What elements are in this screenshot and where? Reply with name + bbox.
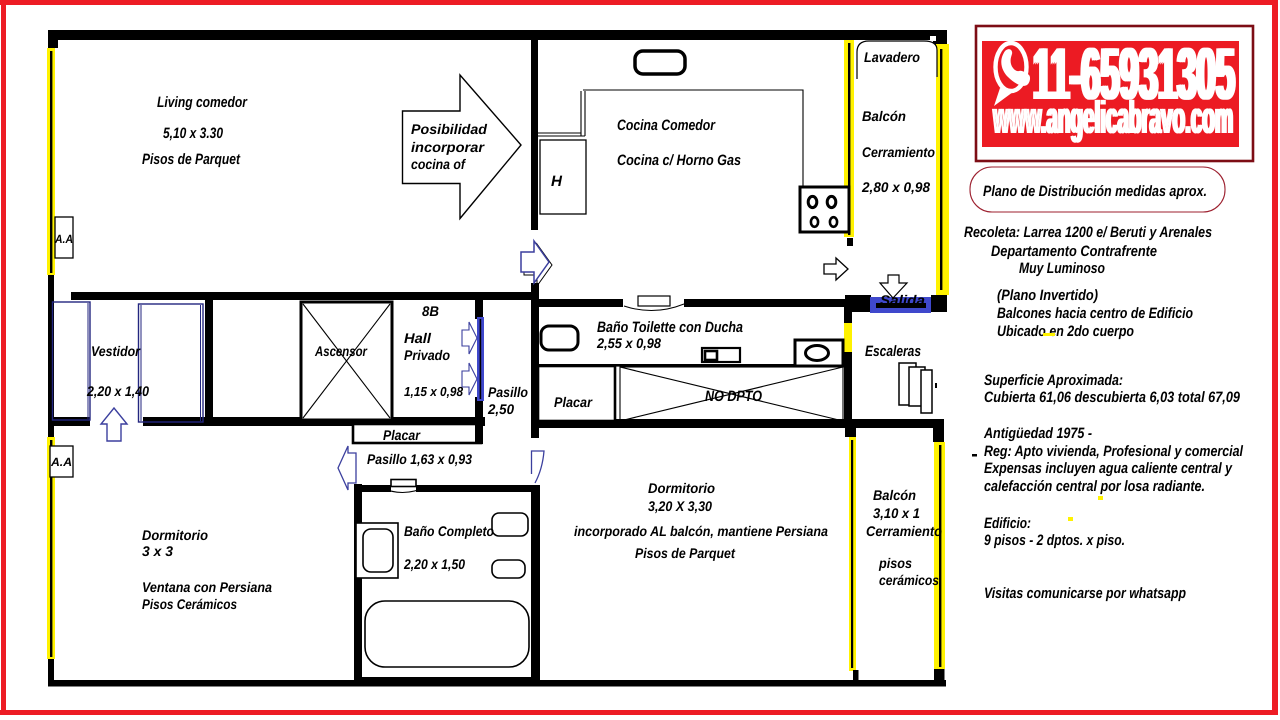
svg-text:Reg: Apto vivienda, Profesiona: Reg: Apto vivienda, Profesional y comerc… <box>984 443 1244 460</box>
svg-text:Muy Luminoso: Muy Luminoso <box>1019 260 1105 277</box>
svg-text:Expensas incluyen agua calient: Expensas incluyen agua caliente central … <box>984 460 1233 477</box>
svg-text:(Plano Invertido): (Plano Invertido) <box>997 287 1098 304</box>
svg-text:2,55 x 0,98: 2,55 x 0,98 <box>596 335 661 351</box>
svg-text:Cerramiento: Cerramiento <box>866 523 942 539</box>
svg-text:pisos: pisos <box>878 555 912 571</box>
svg-text:Ubicado en 2do cuerpo: Ubicado en 2do cuerpo <box>997 323 1134 340</box>
svg-text:Dormitorio: Dormitorio <box>648 480 715 496</box>
svg-text:Recoleta: Larrea 1200 e/ Berut: Recoleta: Larrea 1200 e/ Beruti y Arenal… <box>964 224 1212 241</box>
svg-text:A.A: A.A <box>50 455 72 469</box>
svg-text:Pasillo 1,63 x 0,93: Pasillo 1,63 x 0,93 <box>367 451 472 467</box>
svg-text:Pasillo: Pasillo <box>488 384 528 400</box>
svg-text:1,15 x 0,98: 1,15 x 0,98 <box>404 384 464 399</box>
svg-text:Pisos de Parquet: Pisos de Parquet <box>142 151 241 168</box>
svg-text:Balcón: Balcón <box>873 487 916 503</box>
svg-text:2,80 x 0,98: 2,80 x 0,98 <box>861 179 930 195</box>
svg-text:H: H <box>551 173 563 190</box>
svg-text:A.A: A.A <box>54 232 73 246</box>
svg-text:Escaleras: Escaleras <box>865 343 921 360</box>
svg-text:Salida: Salida <box>880 292 925 308</box>
svg-text:2,20 x 1,50: 2,20 x 1,50 <box>403 556 465 572</box>
svg-text:Posibilidad: Posibilidad <box>411 121 487 137</box>
svg-text:Departamento Contrafrente: Departamento Contrafrente <box>991 243 1157 260</box>
svg-text:Vestidor: Vestidor <box>91 343 141 359</box>
svg-text:8B: 8B <box>422 303 439 319</box>
svg-text:Visitas comunicarse por whatsa: Visitas comunicarse por whatsapp <box>984 585 1186 602</box>
svg-text:Placar: Placar <box>383 427 421 443</box>
svg-text:Pisos Cerámicos: Pisos Cerámicos <box>142 596 237 612</box>
svg-text:Cerramiento: Cerramiento <box>862 144 935 160</box>
svg-text:calefacción central por losa r: calefacción central por losa radiante. <box>984 478 1205 495</box>
svg-text:9 pisos - 2 dptos. x piso.: 9 pisos - 2 dptos. x piso. <box>984 532 1125 549</box>
svg-text:Placar: Placar <box>554 394 593 410</box>
svg-text:2,50: 2,50 <box>487 401 514 417</box>
svg-text:Pisos de Parquet: Pisos de Parquet <box>635 545 736 561</box>
svg-text:Cocina Comedor: Cocina Comedor <box>617 117 716 134</box>
svg-text:Balcón: Balcón <box>862 108 906 124</box>
svg-text:Ascensor: Ascensor <box>314 343 368 359</box>
svg-text:Ventana con Persiana: Ventana con Persiana <box>142 579 272 595</box>
svg-text:Lavadero: Lavadero <box>864 49 920 65</box>
svg-text:Baño Completo: Baño Completo <box>404 523 494 539</box>
svg-text:Living comedor: Living comedor <box>157 94 248 111</box>
svg-text:Edificio:: Edificio: <box>984 515 1031 532</box>
svg-text:3 x 3: 3 x 3 <box>142 543 173 559</box>
svg-text:Superficie Aproximada:: Superficie Aproximada: <box>984 372 1123 389</box>
svg-text:NO DPTO: NO DPTO <box>705 388 762 405</box>
svg-text:cerámicos: cerámicos <box>879 572 939 588</box>
svg-text:Dormitorio: Dormitorio <box>142 527 208 543</box>
svg-text:www.angelicabravo.com: www.angelicabravo.com <box>994 91 1235 143</box>
svg-text:Baño Toilette con Ducha: Baño Toilette con Ducha <box>597 319 743 336</box>
svg-text:3,10 x 1: 3,10 x 1 <box>873 505 920 521</box>
svg-text:Antigüedad 1975 -: Antigüedad 1975 - <box>983 425 1092 442</box>
svg-text:incorporado AL balcón, mantien: incorporado AL balcón, mantiene Persiana <box>574 523 828 539</box>
svg-text:cocina of: cocina of <box>411 156 466 172</box>
svg-text:3,20 X 3,30: 3,20 X 3,30 <box>648 498 712 514</box>
svg-text:Hall: Hall <box>404 330 432 346</box>
svg-text:2,20 x 1,40: 2,20 x 1,40 <box>86 383 149 399</box>
svg-text:incorporar: incorporar <box>411 139 486 155</box>
svg-text:Privado: Privado <box>404 347 450 363</box>
svg-text:Plano de Distribución medidas: Plano de Distribución medidas aprox. <box>983 183 1207 200</box>
svg-text:Cubierta 61,06 descubierta 6,0: Cubierta 61,06 descubierta 6,03 total 67… <box>984 389 1241 406</box>
svg-text:Balcones hacia centro de Edifi: Balcones hacia centro de Edificio <box>997 305 1193 322</box>
svg-text:Cocina c/ Horno Gas: Cocina c/ Horno Gas <box>617 152 741 169</box>
svg-text:5,10 x 3.30: 5,10 x 3.30 <box>163 125 224 142</box>
